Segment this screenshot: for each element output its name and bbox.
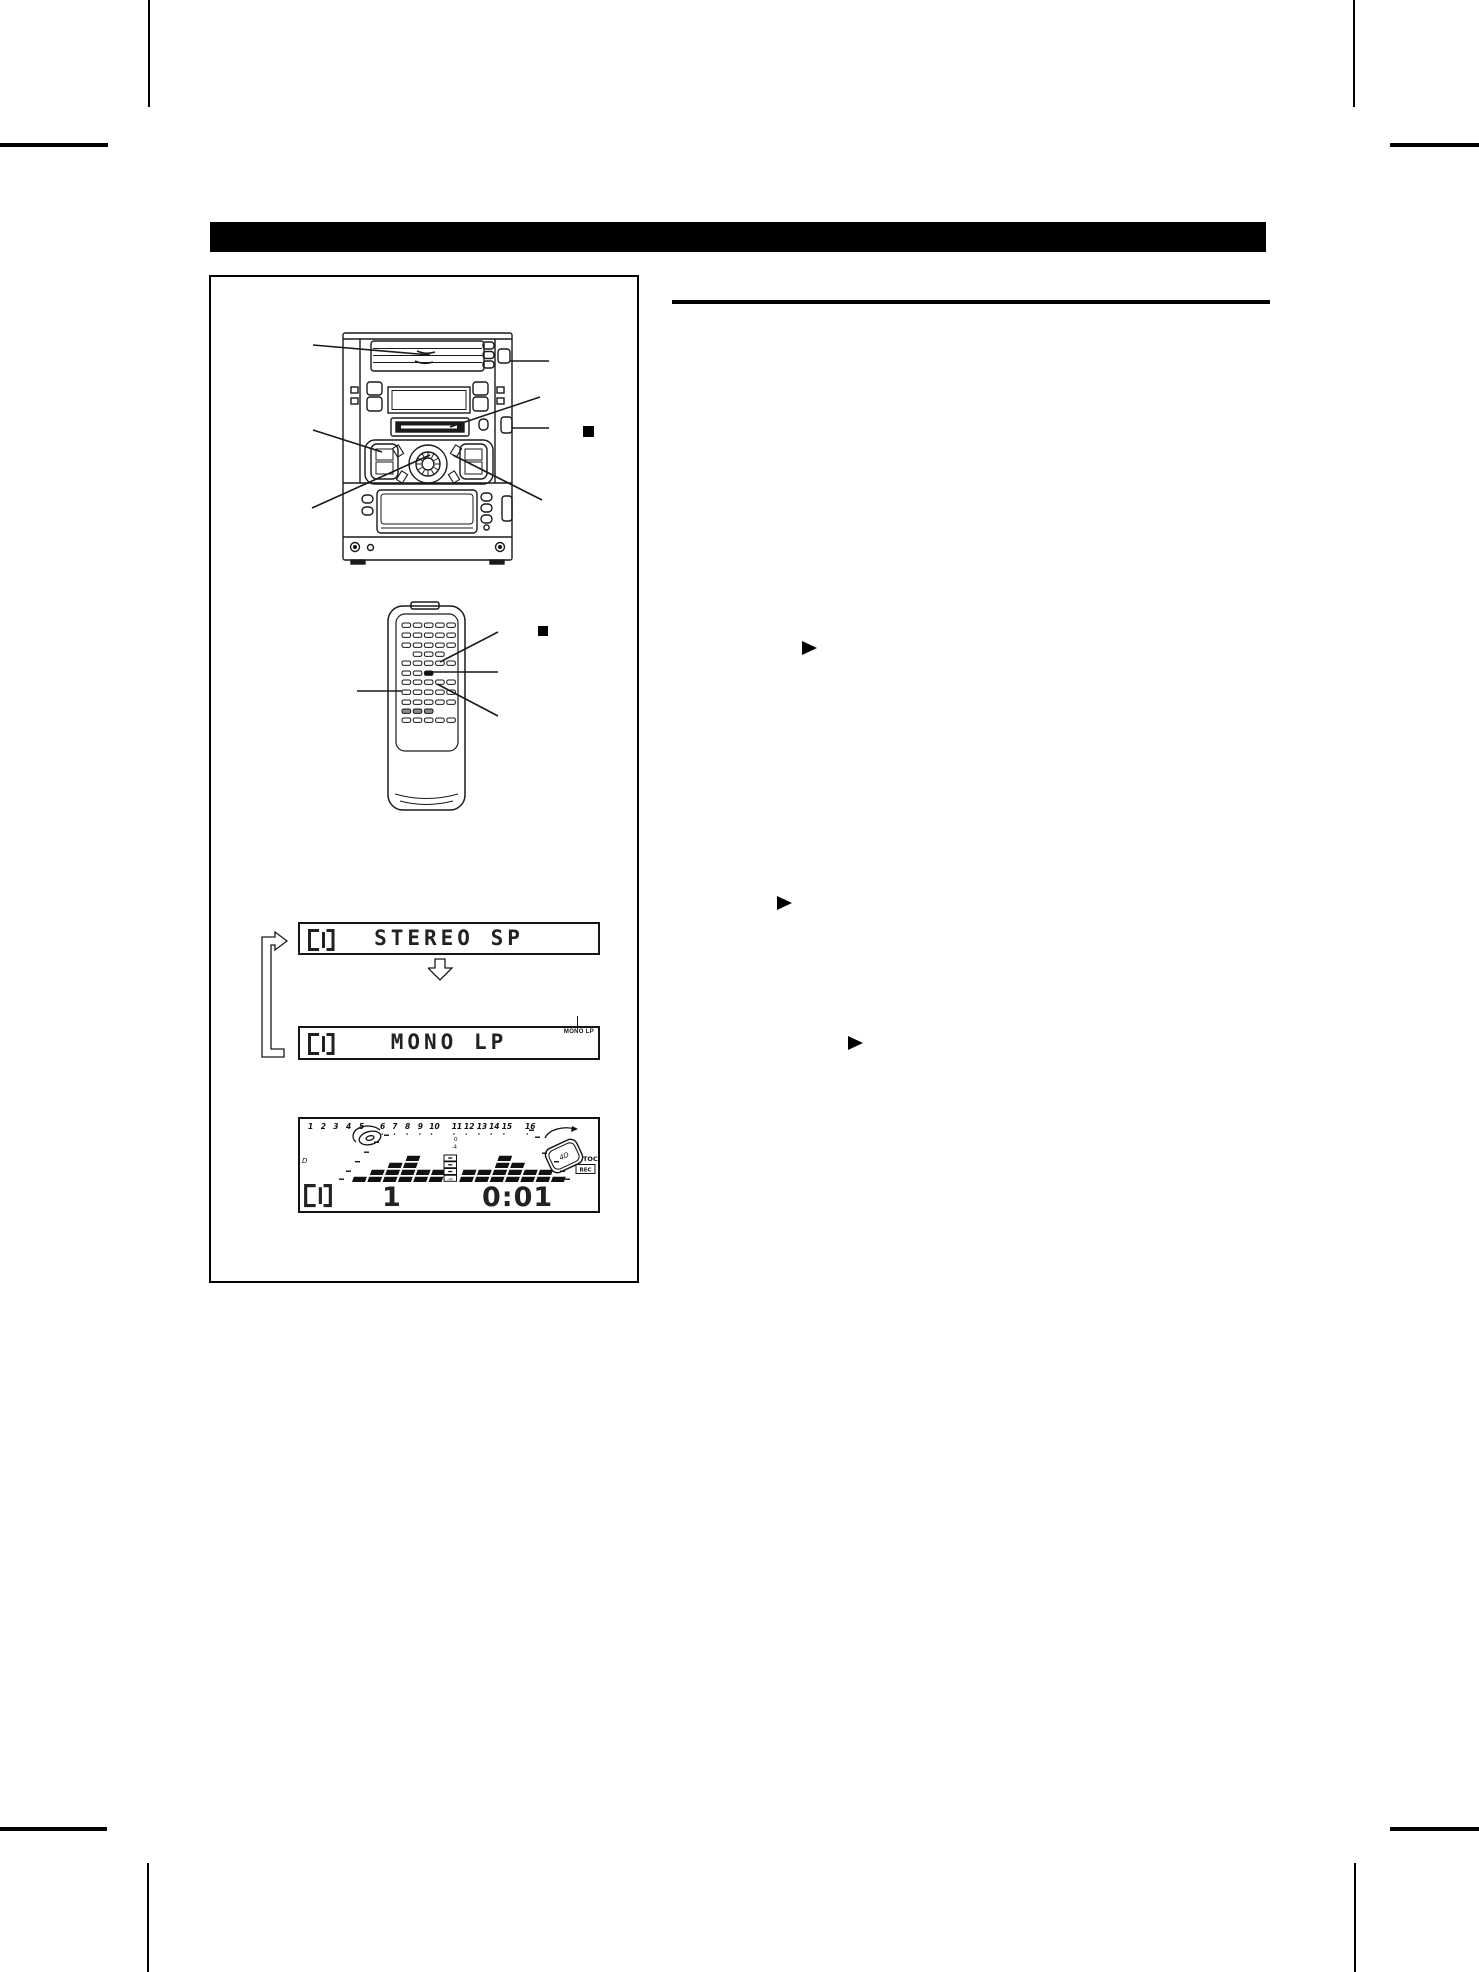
svg-text:4: 4: [346, 1122, 351, 1131]
svg-text:4D: 4D: [558, 1150, 571, 1162]
level-zero: 0: [454, 1137, 458, 1143]
svg-text:12: 12: [464, 1122, 474, 1131]
crop-mark-bottom-right-v: [1354, 1863, 1356, 1972]
stop-square-icon: [538, 626, 548, 636]
svg-text:1: 1: [308, 1122, 313, 1131]
scanned-manual-page: STEREO SP MONO LP MONO LP 12345678910111…: [0, 0, 1479, 1972]
rotating-disc-icon: [353, 1126, 382, 1147]
cd-segment-icon: [306, 1186, 331, 1206]
svg-text:10: 10: [429, 1122, 439, 1131]
svg-text:13: 13: [477, 1122, 487, 1131]
section-header-bar: [210, 222, 1266, 252]
rec-label: REC: [579, 1168, 591, 1174]
crop-mark-top-right-v: [1353, 0, 1355, 107]
lcd-display-illustration: 12345678910111213141516 D: [298, 1117, 600, 1213]
crop-mark-bottom-right-h: [1390, 1827, 1479, 1831]
crop-mark-bottom-left-h: [0, 1827, 107, 1831]
svg-text:3: 3: [333, 1122, 338, 1131]
equalizer-bars: [352, 1156, 566, 1182]
play-triangle-icon: [802, 641, 817, 655]
svg-text:7: 7: [392, 1122, 398, 1131]
svg-text:6: 6: [380, 1122, 385, 1131]
track-number-row: 12345678910111213141516: [308, 1122, 535, 1131]
crop-mark-bottom-left-v: [147, 1863, 149, 1972]
remote-control-illustration: [355, 600, 500, 820]
svg-text:11: 11: [452, 1122, 462, 1131]
svg-text:8: 8: [405, 1122, 410, 1131]
svg-text:15: 15: [502, 1122, 512, 1131]
tape-deck-door: [377, 490, 477, 533]
lcd-panel-mono-lp: MONO LP MONO LP: [298, 1026, 600, 1060]
jog-dial: [409, 445, 447, 483]
stop-square-icon: [583, 426, 594, 437]
stereo-unit-illustration: [305, 330, 550, 565]
play-triangle-icon: [777, 896, 792, 910]
down-arrow-icon: [428, 958, 454, 982]
level-meter-column: -∞: [444, 1155, 457, 1182]
disc-letter: D: [302, 1157, 308, 1165]
rotation-arc: [545, 1128, 575, 1138]
side-button: [498, 349, 510, 363]
svg-text:9: 9: [418, 1122, 423, 1131]
time-readout: 0:01: [482, 1182, 553, 1213]
track-number-readout: 1: [382, 1182, 401, 1213]
crop-mark-top-left-v: [148, 0, 150, 107]
level-minus-four: -4: [452, 1145, 458, 1151]
track-dots: [381, 1133, 528, 1135]
svg-text:2: 2: [321, 1122, 326, 1131]
crop-mark-left-h: [0, 143, 108, 147]
section-divider-rule: [672, 300, 1270, 304]
side-button: [501, 417, 512, 433]
lcd-mode-text: STEREO SP: [300, 926, 598, 950]
crop-mark-right-h: [1390, 143, 1479, 147]
mono-lp-indicator: MONO LP: [548, 1016, 594, 1038]
play-triangle-icon: [848, 1036, 863, 1050]
rotation-arrowhead: [571, 1126, 578, 1132]
indicator-tick: [577, 1016, 579, 1029]
svg-text:14: 14: [489, 1122, 499, 1131]
level-minus-infinity: -∞: [447, 1177, 453, 1182]
toc-label: TOC: [583, 1155, 598, 1163]
lcd-panel-stereo-sp: STEREO SP: [298, 922, 600, 955]
